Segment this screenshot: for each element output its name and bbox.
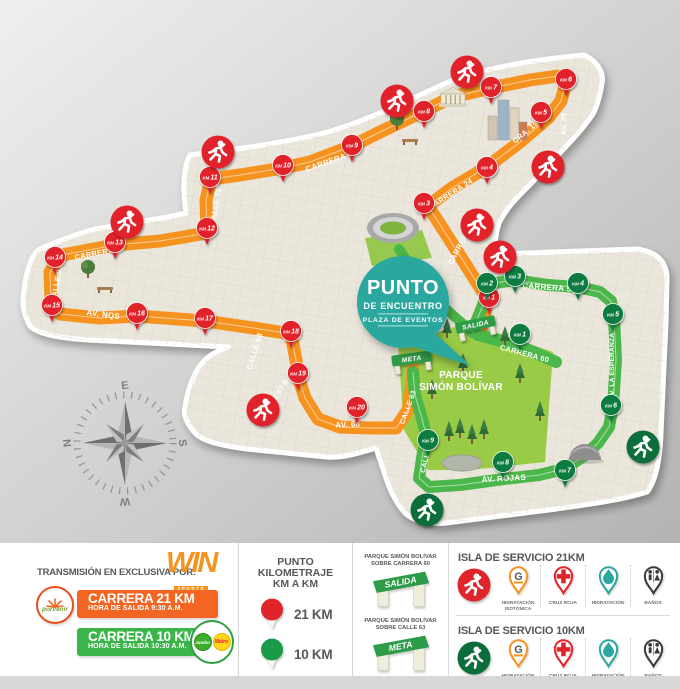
legend-gates: PARQUE SIMÓN BOLÍVAR SOBRE CARRERA 60 SA… <box>352 543 448 676</box>
svg-text:KM 12: KM 12 <box>199 226 215 233</box>
salida-caption-1: PARQUE SIMÓN BOLÍVAR <box>353 554 448 561</box>
service-hydration-10k: HIDRATACIÓN <box>585 638 630 680</box>
park-label: PARQUE <box>439 370 483 381</box>
red-cross-pin-icon <box>551 638 576 669</box>
km-10-pin-icon <box>259 638 285 670</box>
km-points-title: PUNTO KILOMETRAJE KM A KM <box>239 557 352 590</box>
svg-text:N: N <box>62 438 75 447</box>
svg-text:KM 8: KM 8 <box>418 109 430 116</box>
runner-icon-red <box>202 136 235 169</box>
km-10-label: 10 KM <box>294 647 332 662</box>
legend-km-points: PUNTO KILOMETRAJE KM A KM 21 KM 10 KM <box>238 543 352 676</box>
porvenir-logo: porvenir <box>36 586 74 624</box>
svg-text:KM 9: KM 9 <box>346 143 358 150</box>
svg-text:KM 7: KM 7 <box>559 468 572 475</box>
salida-gate-icon: SALIDA <box>371 569 431 609</box>
svg-text:KM 19: KM 19 <box>290 371 306 378</box>
svg-text:KM 4: KM 4 <box>572 281 584 288</box>
runner-icon-green <box>411 494 444 527</box>
isotonic-pin-icon: G <box>506 565 531 596</box>
km-21-pin-icon <box>259 598 285 630</box>
service-hydration-21k: HIDRATACIÓN <box>585 565 630 607</box>
km-10-legend-item: 10 KM <box>259 638 352 670</box>
sponsors-10k: Jumbo Metro <box>190 620 234 664</box>
water-drop-pin-icon <box>596 565 621 596</box>
svg-text:PLAZA DE EVENTOS: PLAZA DE EVENTOS <box>363 317 444 324</box>
runner-icon-red <box>484 241 517 274</box>
street-label: AV. LA ESPERANZA <box>609 333 616 400</box>
legend-service-islands: ISLA DE SERVICIO 21KM G HIDRATACIÓNISOTÓ… <box>448 543 680 676</box>
salida-gate-block: PARQUE SIMÓN BOLÍVAR SOBRE CARRERA 60 SA… <box>353 554 448 614</box>
km-21-legend-item: 21 KM <box>259 598 352 630</box>
svg-text:KM 11: KM 11 <box>202 175 217 182</box>
svg-text:G: G <box>514 644 523 656</box>
svg-text:KM 16: KM 16 <box>129 311 145 318</box>
race-21k-bar: CARRERA 21 KM HORA DE SALIDA 9:30 A.M. <box>77 590 218 618</box>
service-restrooms-10k: BAÑOS <box>630 638 675 680</box>
svg-text:PUNTO: PUNTO <box>367 277 439 299</box>
svg-text:KM 8: KM 8 <box>497 460 509 467</box>
isla-21k-row: G HIDRATACIÓNISOTÓNICA CRUZ ROJA <box>456 565 680 612</box>
runner-icon-red <box>247 394 280 427</box>
runner-icon-green <box>627 431 660 464</box>
isotonic-pin-icon: G <box>506 638 531 669</box>
footer-bar <box>0 676 680 689</box>
meta-caption-1: PARQUE SIMÓN BOLÍVAR <box>353 618 448 625</box>
runner-10k-icon <box>456 640 492 676</box>
runner-21k-icon <box>456 567 492 603</box>
svg-text:KM 3: KM 3 <box>418 201 430 208</box>
race-course-poster: CARRERA 53CARRERA 24CRA. 19AV. 39CARRERA… <box>0 0 680 689</box>
service-isotonic-21k: G HIDRATACIÓNISOTÓNICA <box>496 565 540 612</box>
isla-divider <box>456 615 670 616</box>
meta-gate-icon: META <box>371 633 431 673</box>
km-21-label: 21 KM <box>294 607 332 622</box>
porvenir-label: porvenir <box>42 606 68 613</box>
svg-text:KM 5: KM 5 <box>535 110 547 117</box>
street-label: AV. 39 <box>561 113 568 135</box>
svg-text:KM 3: KM 3 <box>509 274 521 281</box>
water-drop-pin-icon <box>596 638 621 669</box>
race-21k-subtitle: HORA DE SALIDA 9:30 A.M. <box>88 605 218 612</box>
svg-text:KM 5: KM 5 <box>607 312 619 319</box>
svg-text:KM 18: KM 18 <box>283 329 299 336</box>
race-10k-bar: CARRERA 10 KM HORA DE SALIDA 10:30 A.M. … <box>77 628 218 656</box>
restrooms-pin-icon <box>641 638 666 669</box>
jumbo-logo: Jumbo <box>194 633 212 651</box>
svg-text:KM 7: KM 7 <box>485 85 498 92</box>
meta-gate-block: PARQUE SIMÓN BOLÍVAR SOBRE CALLE 63 META <box>353 618 448 678</box>
isla-21k-title: ISLA DE SERVICIO 21KM <box>458 552 680 564</box>
meta-caption-2: SOBRE CALLE 63 <box>353 625 448 632</box>
svg-text:KM 20: KM 20 <box>349 405 365 412</box>
red-cross-pin-icon <box>551 565 576 596</box>
restrooms-pin-icon <box>641 565 666 596</box>
svg-text:KM 4: KM 4 <box>481 165 493 172</box>
runner-icon-red <box>111 206 144 239</box>
runner-icon-red <box>461 209 494 242</box>
isla-10k-title: ISLA DE SERVICIO 10KM <box>458 625 680 637</box>
svg-text:KM 9: KM 9 <box>422 438 434 445</box>
svg-text:KM 15: KM 15 <box>44 303 60 310</box>
legend: TRANSMISIÓN EN EXCLUSIVA POR: WIN SPORTS… <box>0 543 680 676</box>
legend-transmission: TRANSMISIÓN EN EXCLUSIVA POR: WIN SPORTS… <box>0 543 238 676</box>
win-sports-logo: WIN SPORTS <box>166 549 216 595</box>
lake-landmark <box>442 455 482 471</box>
stadium-landmark <box>367 213 419 243</box>
runner-icon-red <box>381 85 414 118</box>
svg-text:META: META <box>387 639 412 653</box>
svg-text:KM 1: KM 1 <box>483 295 495 302</box>
metro-logo: Metro <box>213 633 231 651</box>
svg-text:W: W <box>119 495 131 508</box>
svg-text:KM 14: KM 14 <box>47 255 63 262</box>
service-redcross-21k: CRUZ ROJA <box>540 565 585 607</box>
park-label: SIMÓN BOLÍVAR <box>419 380 503 393</box>
svg-text:KM 17: KM 17 <box>197 316 214 323</box>
svg-text:KM 6: KM 6 <box>605 403 617 410</box>
svg-text:S: S <box>176 439 189 448</box>
svg-text:G: G <box>514 571 523 583</box>
svg-text:KM 1: KM 1 <box>514 332 526 339</box>
runner-icon-red <box>532 151 565 184</box>
svg-text:DE ENCUENTRO: DE ENCUENTRO <box>363 301 442 311</box>
svg-text:KM 13: KM 13 <box>107 240 123 247</box>
salida-caption-2: SOBRE CARRERA 60 <box>353 561 448 568</box>
race-21k-title: CARRERA 21 KM <box>88 593 218 605</box>
svg-text:KM 10: KM 10 <box>275 163 291 170</box>
runner-icon-red <box>451 56 484 89</box>
service-restrooms-21k: BAÑOS <box>630 565 675 607</box>
svg-text:KM 6: KM 6 <box>560 77 572 84</box>
svg-text:KM 2: KM 2 <box>481 281 493 288</box>
service-redcross-10k: CRUZ ROJA <box>540 638 585 680</box>
win-logo-text: WIN <box>166 549 216 577</box>
course-map: CARRERA 53CARRERA 24CRA. 19AV. 39CARRERA… <box>0 0 680 545</box>
